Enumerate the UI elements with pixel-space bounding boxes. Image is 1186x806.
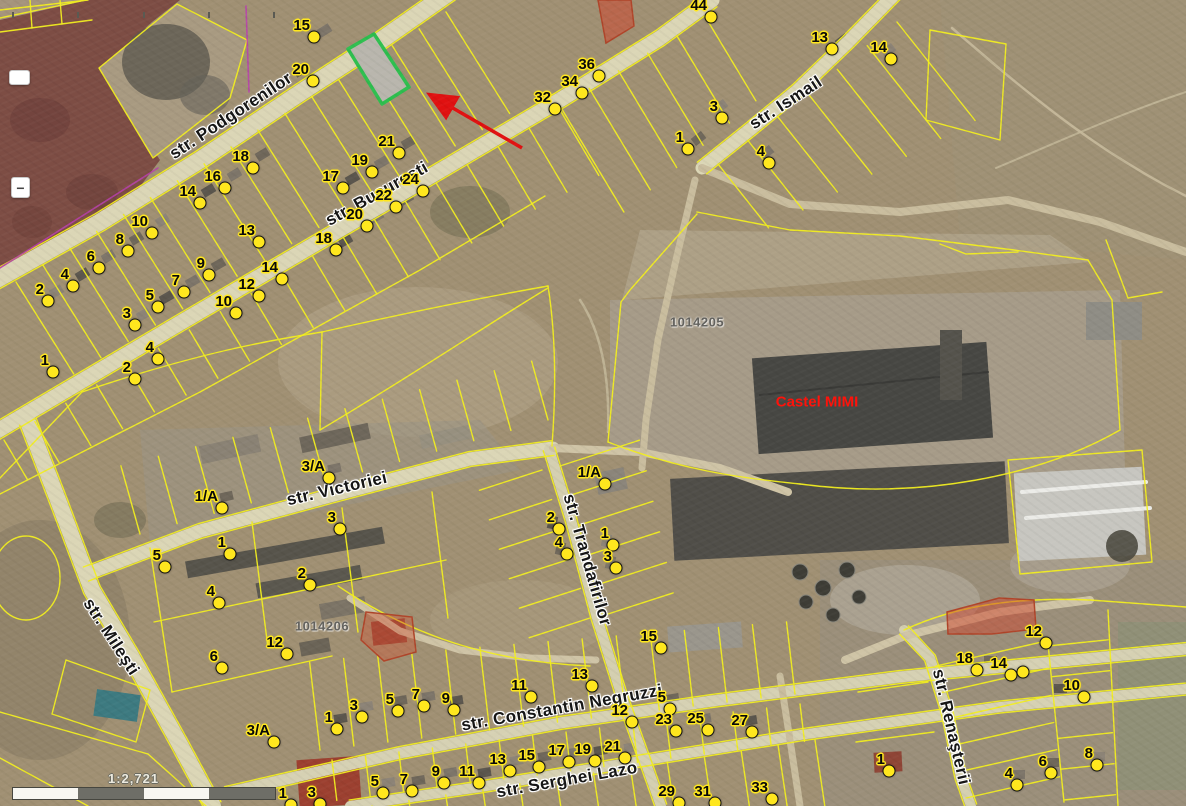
marker-number: 3 <box>328 510 336 525</box>
marker-number: 2 <box>123 360 131 375</box>
marker-number: 31 <box>694 784 711 799</box>
marker-number: 8 <box>1085 746 1093 761</box>
marker-number: 5 <box>146 288 154 303</box>
marker-number: 14 <box>870 40 887 55</box>
scale-segment <box>144 788 209 799</box>
marker-number: 5 <box>386 692 394 707</box>
marker-number: 29 <box>658 784 675 799</box>
marker-number: 5 <box>153 548 161 563</box>
marker-number: 11 <box>459 764 475 779</box>
marker-number: 19 <box>351 153 368 168</box>
marker-number: 20 <box>292 62 309 77</box>
marker-number: 16 <box>204 169 221 184</box>
marker-number: 4 <box>207 584 215 599</box>
marker-number: 6 <box>210 649 218 664</box>
marker-number: 7 <box>400 772 408 787</box>
marker-number: 4 <box>757 144 765 159</box>
scale-tick <box>77 12 79 18</box>
marker-number: 4 <box>61 267 69 282</box>
marker-number: 3 <box>710 99 718 114</box>
street-label: str. Ismail <box>746 72 826 134</box>
street-label: str. Podgorenilor <box>166 68 296 164</box>
scale-segment <box>209 788 275 799</box>
marker-number: 11 <box>511 678 527 693</box>
marker-number: 18 <box>315 231 332 246</box>
marker-number: 9 <box>197 256 205 271</box>
marker-number: 2 <box>547 510 555 525</box>
marker-number: 32 <box>534 90 551 105</box>
zoom-out-button[interactable]: − <box>11 177 30 198</box>
marker-number: 3 <box>604 549 612 564</box>
marker-number: 4 <box>1005 766 1013 781</box>
marker-number: 27 <box>731 713 748 728</box>
marker-number: 8 <box>116 232 124 247</box>
parcel-id-label: 1014205 <box>670 315 724 330</box>
marker-number: 23 <box>655 712 672 727</box>
marker-number: 7 <box>172 273 180 288</box>
marker-number: 12 <box>238 277 255 292</box>
marker-number: 13 <box>571 667 588 682</box>
marker-number: 9 <box>432 764 440 779</box>
marker-number: 3 <box>123 306 131 321</box>
marker-number: 22 <box>375 188 392 203</box>
marker-number: 3/A <box>302 459 325 474</box>
scale-tick <box>273 12 275 18</box>
scale-bar <box>12 787 276 800</box>
marker-number: 2 <box>298 566 306 581</box>
street-label: str. Renaşterii <box>928 667 974 787</box>
marker-number: 15 <box>640 629 657 644</box>
marker-number: 21 <box>604 739 621 754</box>
marker-number: 6 <box>1039 754 1047 769</box>
scale-text: 1:2,721 <box>108 771 159 786</box>
marker-number: 33 <box>751 780 768 795</box>
marker-number: 18 <box>956 651 973 666</box>
marker-number: 20 <box>346 207 363 222</box>
marker-number: 4 <box>555 535 563 550</box>
marker-number: 17 <box>322 169 339 184</box>
marker-number: 10 <box>215 294 232 309</box>
marker-number: 1 <box>218 535 226 550</box>
marker-number: 1/A <box>578 465 601 480</box>
street-label: str. Victoriei <box>285 468 389 511</box>
marker-number: 15 <box>293 18 310 33</box>
marker-number: 1 <box>41 353 49 368</box>
marker-number: 24 <box>402 172 419 187</box>
marker-number: 2 <box>36 282 44 297</box>
marker-number: 15 <box>518 748 535 763</box>
street-label: str. Mileşti <box>79 595 144 680</box>
marker-number: 36 <box>578 57 595 72</box>
marker-number: 13 <box>489 752 506 767</box>
poi-label-castel-mimi: Castel MIMI <box>776 394 859 411</box>
marker-number: 44 <box>690 0 707 13</box>
scale-segment <box>78 788 144 799</box>
marker-number: 1 <box>676 130 684 145</box>
marker-number: 10 <box>131 214 148 229</box>
marker-number: 5 <box>658 690 666 705</box>
marker-number: 13 <box>238 223 255 238</box>
marker-number: 10 <box>1063 678 1080 693</box>
marker-number: 1 <box>601 526 609 541</box>
marker-number: 12 <box>1025 624 1042 639</box>
parcel-id-label: 1014206 <box>295 619 349 634</box>
marker-number: 25 <box>687 711 704 726</box>
map-control-button[interactable] <box>9 70 30 85</box>
scale-tick <box>208 12 210 18</box>
map-viewport: str. Podgorenilorstr. Bucureştistr. Isma… <box>0 0 1186 806</box>
scale-tick <box>12 12 14 18</box>
map-label-layer: str. Podgorenilorstr. Bucureştistr. Isma… <box>0 0 1186 806</box>
marker-number: 5 <box>371 774 379 789</box>
marker-number: 1 <box>325 710 333 725</box>
marker-number: 3 <box>308 785 316 800</box>
marker-number: 1 <box>877 752 885 767</box>
marker-number: 7 <box>412 687 420 702</box>
marker-number: 17 <box>548 743 565 758</box>
marker-number: 18 <box>232 149 249 164</box>
marker-number: 34 <box>561 74 578 89</box>
scale-segment <box>13 788 78 799</box>
marker-number: 12 <box>611 703 628 718</box>
marker-number: 13 <box>811 30 828 45</box>
marker-number: 12 <box>266 635 283 650</box>
marker-dot[interactable] <box>1017 666 1030 679</box>
marker-number: 6 <box>87 249 95 264</box>
marker-number: 1 <box>279 786 287 801</box>
marker-number: 4 <box>146 340 154 355</box>
marker-number: 14 <box>179 184 196 199</box>
marker-number: 1/A <box>195 489 218 504</box>
marker-number: 14 <box>990 656 1007 671</box>
marker-number: 3/A <box>247 723 270 738</box>
marker-number: 9 <box>442 691 450 706</box>
scale-tick <box>143 12 145 18</box>
marker-number: 21 <box>378 134 395 149</box>
marker-number: 3 <box>350 698 358 713</box>
marker-number: 14 <box>261 260 278 275</box>
marker-number: 19 <box>574 742 591 757</box>
